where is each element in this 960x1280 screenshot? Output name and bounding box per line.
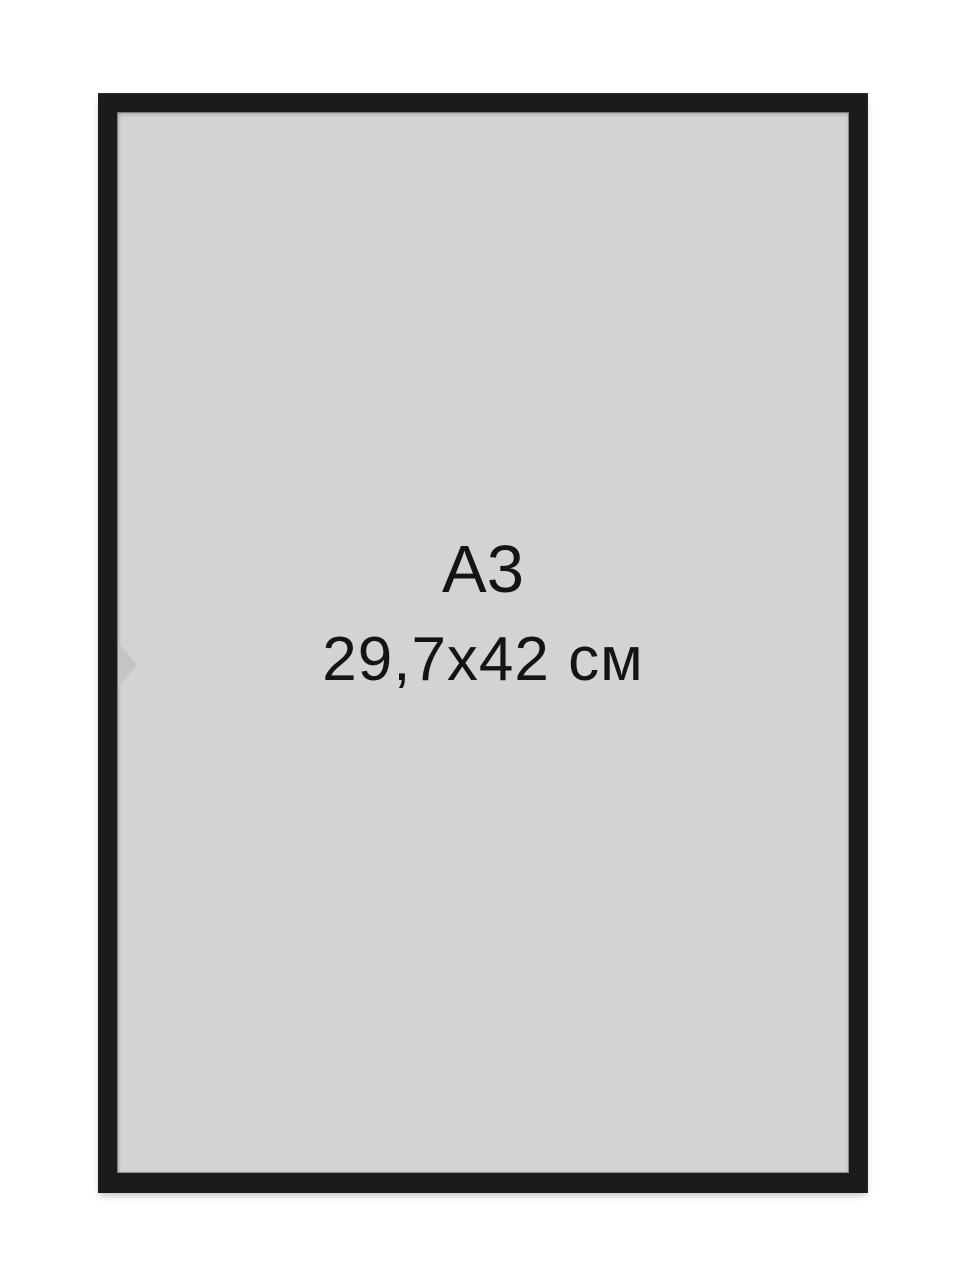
frame-mat: А3 29,7x42 см xyxy=(117,112,849,1173)
size-label: А3 xyxy=(117,536,849,603)
product-image-canvas: А3 29,7x42 см xyxy=(0,0,960,1280)
picture-frame: А3 29,7x42 см xyxy=(98,93,868,1193)
dimensions-label: 29,7x42 см xyxy=(117,629,849,691)
size-text-block: А3 29,7x42 см xyxy=(117,536,849,691)
